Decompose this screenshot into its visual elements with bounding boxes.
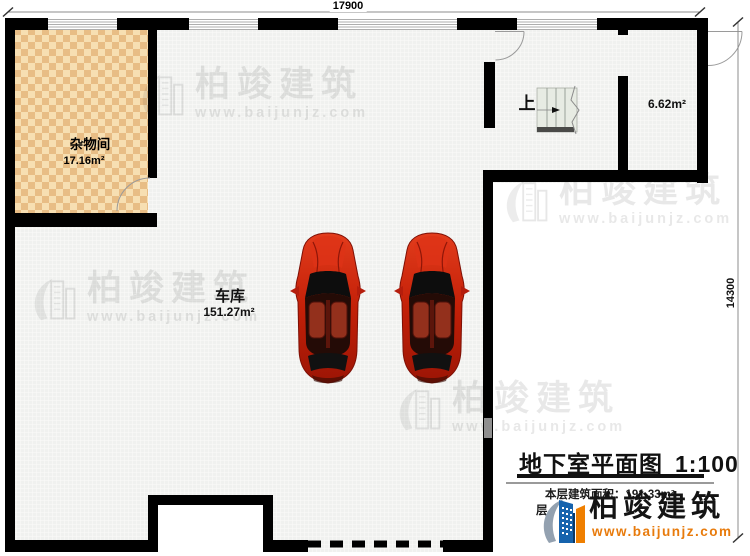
company-logo-brand: 柏竣建筑 bbox=[589, 493, 725, 522]
staircase-icon bbox=[537, 86, 579, 134]
watermark-url: www.baijunjz.com bbox=[452, 419, 625, 435]
watermark-brand: 柏竣建筑 bbox=[195, 67, 368, 102]
window-symbol bbox=[48, 18, 597, 30]
watermark: 柏竣建筑 www.baijunjz.com bbox=[136, 66, 368, 122]
height-note-fragment: 层 bbox=[536, 502, 548, 518]
watermark-url: www.baijunjz.com bbox=[195, 105, 368, 121]
stairs-up-label: 上 bbox=[519, 95, 536, 114]
watermark: 柏竣建筑 www.baijunjz.com bbox=[500, 172, 732, 228]
watermark-logo-icon bbox=[393, 380, 445, 436]
garage-area: 151.27m² bbox=[203, 306, 254, 319]
watermark-logo-icon bbox=[136, 66, 188, 122]
title-underline-thin bbox=[506, 482, 714, 484]
car-icon bbox=[290, 233, 470, 383]
floorplan-page: 柏竣建筑 www.baijunjz.com 柏竣建筑 www.baijunjz.… bbox=[0, 0, 750, 556]
title-underline bbox=[517, 474, 704, 478]
storage-floor bbox=[14, 27, 148, 214]
small-room-area: 6.62m² bbox=[648, 98, 686, 111]
storage-room-area: 17.16m² bbox=[64, 155, 105, 167]
height-note-fragment: 2. bbox=[561, 503, 571, 515]
watermark: 柏竣建筑 www.baijunjz.com bbox=[393, 380, 625, 436]
watermark-logo-icon bbox=[28, 270, 80, 326]
watermark-brand: 柏竣建筑 bbox=[452, 381, 625, 416]
company-logo-url: www.baijunjz.com bbox=[592, 524, 733, 539]
garage-label: 车库 bbox=[215, 289, 245, 306]
watermark-url: www.baijunjz.com bbox=[559, 211, 732, 227]
dimension-right-label: 14300 bbox=[725, 273, 737, 313]
storage-room-label: 杂物间 bbox=[70, 138, 111, 153]
watermark-logo-icon bbox=[500, 172, 552, 228]
dimension-top-label: 17900 bbox=[330, 0, 367, 12]
watermark-brand: 柏竣建筑 bbox=[559, 173, 732, 208]
